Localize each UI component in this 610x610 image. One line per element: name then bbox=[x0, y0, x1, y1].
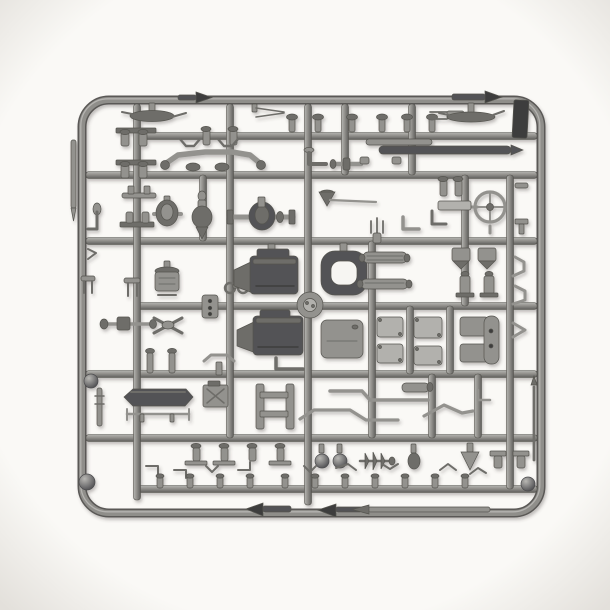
leaf-spring-a bbox=[359, 252, 410, 263]
valve-pair-shape bbox=[440, 180, 447, 196]
barrel-dark-bar bbox=[379, 145, 523, 155]
valve-pair-shape bbox=[453, 176, 463, 181]
clip-b bbox=[392, 157, 401, 164]
stand-valves-row-shape bbox=[213, 461, 235, 465]
valve-fittings-row-shape bbox=[402, 114, 413, 120]
finned-part-shape bbox=[389, 457, 395, 465]
center-disc-tag bbox=[297, 292, 323, 318]
valve-fittings-row-shape bbox=[313, 114, 324, 120]
rear-axle-shape bbox=[289, 210, 295, 224]
stand-valves-row-shape bbox=[249, 448, 256, 461]
barrel-dark-bar-shape bbox=[379, 146, 511, 154]
shaft-coupler-shape bbox=[150, 320, 157, 329]
teardrop-part-shape bbox=[411, 444, 416, 453]
blade-part-top-left-shape bbox=[130, 111, 174, 122]
canister-part-shape bbox=[155, 272, 179, 291]
stem-valve-a-shape bbox=[147, 353, 153, 373]
ladder-frame-shape bbox=[260, 392, 288, 398]
ball-stud-right-lower-shape bbox=[521, 477, 535, 491]
seat-cushion-d-shape bbox=[416, 348, 419, 351]
stand-part-a-shape bbox=[456, 293, 474, 297]
seat-cushion-c bbox=[414, 317, 442, 338]
x-bracket-shape bbox=[162, 321, 174, 329]
valve-pair-shape bbox=[438, 176, 448, 181]
leaf-spring-a-shape bbox=[359, 254, 365, 262]
cup-part-a-shape bbox=[490, 451, 506, 456]
stud-row-bottom-shape bbox=[402, 477, 408, 488]
stand-part-a-shape bbox=[460, 276, 470, 294]
leaf-spring-b-shape bbox=[357, 280, 363, 288]
stud-row-bottom-shape bbox=[282, 477, 288, 488]
mount-bracket-a-shape bbox=[121, 133, 129, 146]
seat-cushion-c-shape bbox=[438, 334, 441, 337]
stud-row-bottom-shape bbox=[311, 474, 319, 478]
clip-a-shape bbox=[360, 157, 369, 164]
valve-fittings-row-shape bbox=[347, 114, 358, 120]
stand-valves-row-shape bbox=[185, 461, 207, 465]
runner-vertical bbox=[475, 374, 482, 438]
ball-stud-left-lower bbox=[79, 474, 95, 490]
seat-cushion-d bbox=[414, 346, 442, 365]
valve-pair-shape bbox=[455, 180, 462, 196]
ball-stud-right-lower bbox=[521, 477, 535, 491]
tee-fitting-right-shape bbox=[519, 224, 524, 234]
stud-row-bottom-shape bbox=[217, 477, 223, 488]
fuel-tank bbox=[321, 320, 363, 358]
stud-row-bottom-shape bbox=[186, 474, 194, 478]
plate-light-small bbox=[438, 201, 471, 210]
stud-row-bottom-shape bbox=[372, 477, 378, 488]
mount-bracket-a-shape bbox=[120, 129, 130, 134]
seat-cushion-a-shape bbox=[399, 333, 402, 336]
grip-rod-left-shape bbox=[97, 388, 102, 426]
runner-horizontal bbox=[137, 133, 537, 140]
mount-bracket-b-shape bbox=[121, 165, 129, 178]
coupler-rod-shape bbox=[343, 158, 350, 170]
stud-row-bottom-shape bbox=[156, 474, 164, 478]
clip-right-upper bbox=[515, 183, 528, 188]
seat-cushion-c-shape bbox=[416, 319, 419, 322]
center-disc-tag-shape bbox=[312, 305, 315, 308]
mount-bracket-b-shape bbox=[139, 165, 147, 178]
ball-stud-left-mid-shape bbox=[84, 374, 98, 388]
runner-vertical bbox=[447, 306, 454, 374]
runner-vertical bbox=[507, 175, 514, 489]
engine-block-lower-shape bbox=[256, 318, 301, 323]
muffler-small-shape bbox=[402, 383, 429, 392]
clip-a bbox=[360, 157, 369, 164]
valve-fittings-row-shape bbox=[287, 114, 298, 120]
hole-bracket bbox=[202, 295, 218, 318]
stud-row-bottom-shape bbox=[312, 477, 318, 488]
handlebar-part-shape bbox=[216, 362, 222, 375]
gate-dart-top-b-shape bbox=[452, 94, 485, 100]
prong-bracket-a-shape bbox=[81, 276, 95, 281]
stud-clamp-pair-shape bbox=[201, 126, 211, 131]
cup-part-b-shape bbox=[517, 456, 525, 468]
stud-row-bottom-shape bbox=[216, 474, 224, 478]
leaf-spring-b bbox=[357, 279, 412, 289]
jerry-can bbox=[203, 381, 228, 407]
mold-tab-dark-shape bbox=[512, 100, 529, 139]
ball-pair-shape bbox=[315, 454, 329, 468]
seat-cushion-a-shape bbox=[379, 319, 382, 322]
mold-tab-dark bbox=[512, 100, 529, 139]
leaf-spring-a-shape bbox=[404, 254, 410, 262]
stem-valve-a bbox=[146, 348, 155, 373]
rack-bar-shape bbox=[140, 414, 144, 422]
stud-row-bottom-shape bbox=[341, 474, 349, 478]
blade-part-top-right-shape bbox=[447, 112, 495, 122]
flat-bar-light-shape bbox=[366, 139, 432, 145]
seat-cushion-d-shape bbox=[438, 361, 441, 364]
tee-fitting-right-shape bbox=[515, 219, 528, 224]
ball-pair-shape bbox=[337, 444, 342, 453]
ladder-frame-shape bbox=[286, 384, 294, 429]
runner-rod-bottom-shape bbox=[368, 507, 490, 512]
hole-bracket-shape bbox=[208, 312, 212, 316]
pad-part-a-shape bbox=[452, 248, 470, 261]
seat-cushion-b-shape bbox=[379, 346, 382, 349]
center-disc-tag-shape bbox=[306, 302, 309, 305]
stand-part-b-shape bbox=[480, 293, 498, 297]
stud-row-bottom-shape bbox=[461, 474, 469, 478]
stud-row-bottom-shape bbox=[246, 474, 254, 478]
muffler-small bbox=[402, 383, 433, 393]
mount-bracket-c-shape bbox=[142, 212, 149, 223]
side-rod-left bbox=[71, 140, 76, 221]
side-panel-curved bbox=[484, 316, 499, 364]
shaft-coupler-shape bbox=[117, 317, 130, 330]
strip-plate-shape bbox=[128, 186, 134, 194]
shaft-coupler-shape bbox=[100, 319, 108, 329]
stand-valves-row-shape bbox=[221, 448, 228, 461]
leaf-spring-b-shape bbox=[361, 279, 408, 289]
coupler-rod-shape bbox=[330, 160, 336, 169]
gate-dart-top-a-shape bbox=[178, 95, 196, 100]
strip-plate-shape bbox=[122, 193, 156, 198]
rack-bar-shape bbox=[170, 414, 174, 422]
plate-light-small-shape bbox=[438, 201, 471, 210]
rear-axle-shape bbox=[227, 210, 233, 224]
strip-plate-shape bbox=[144, 186, 150, 194]
stud-row-bottom-shape bbox=[187, 477, 193, 488]
runner-horizontal bbox=[137, 486, 537, 493]
stand-valves-row-shape bbox=[277, 448, 284, 461]
stud-row-bottom-shape bbox=[401, 474, 409, 478]
mount-bracket-b-shape bbox=[138, 161, 148, 166]
blade-part-top-right-shape bbox=[468, 103, 474, 113]
ball-stud-left-mid bbox=[84, 374, 98, 388]
stud-row-bottom-shape bbox=[247, 477, 253, 488]
stem-valve-b bbox=[168, 348, 177, 373]
stud-row-bottom-shape bbox=[462, 477, 468, 488]
mount-bracket-a-shape bbox=[138, 129, 148, 134]
seat-cushion-b-shape bbox=[399, 359, 402, 362]
side-panel-curved-shape bbox=[484, 316, 499, 364]
sway-bar-shape bbox=[215, 163, 229, 171]
mount-bracket-a-shape bbox=[139, 133, 147, 146]
stud-row-bottom-shape bbox=[157, 477, 163, 488]
side-rod-left-shape bbox=[71, 140, 76, 208]
ladder-frame-shape bbox=[256, 384, 264, 429]
mount-bracket-b-shape bbox=[120, 161, 130, 166]
spindle-part-shape bbox=[198, 191, 206, 201]
engine-block-upper-shape bbox=[257, 249, 289, 258]
hole-bracket-shape bbox=[208, 299, 212, 303]
flat-bar-light bbox=[366, 139, 432, 145]
rear-axle-shape bbox=[277, 212, 284, 223]
sprue-photo-svg bbox=[0, 0, 610, 610]
ball-pair-shape bbox=[319, 444, 324, 453]
funnel-cone-shape bbox=[467, 443, 473, 452]
sway-bar-shape bbox=[161, 161, 170, 170]
runner-vertical bbox=[407, 306, 414, 374]
muffler-small-shape bbox=[427, 383, 433, 392]
ball-stud-left-lower-shape bbox=[79, 474, 95, 490]
photo-stage: Photograph of a gray injection-molded pl… bbox=[0, 0, 610, 610]
rear-axle-shape bbox=[255, 206, 269, 224]
side-panel-curved-shape bbox=[489, 344, 493, 348]
stud-clamp-pair-shape bbox=[203, 130, 210, 145]
stand-part-b-shape bbox=[484, 276, 494, 294]
runner-vertical bbox=[369, 241, 376, 438]
stand-valves-row-shape bbox=[193, 448, 200, 461]
stud-clamp-pair-shape bbox=[228, 126, 238, 131]
leaf-spring-a-shape bbox=[363, 252, 407, 263]
leaf-spring-b-shape bbox=[406, 280, 412, 288]
sway-bar-shape bbox=[257, 161, 266, 170]
pad-part-b-shape bbox=[478, 248, 496, 261]
mount-bracket-c-shape bbox=[120, 222, 154, 227]
cup-part-b-shape bbox=[513, 451, 529, 456]
stud-row-bottom-shape bbox=[281, 474, 289, 478]
clip-b-shape bbox=[392, 157, 401, 164]
steering-wheel-hub bbox=[487, 204, 494, 211]
stud-row-bottom-shape bbox=[431, 474, 439, 478]
hull-part-dark bbox=[124, 389, 193, 406]
teardrop-part-shape bbox=[408, 453, 420, 469]
seat-cushion-b bbox=[377, 344, 403, 363]
stud-row-bottom-shape bbox=[342, 477, 348, 488]
rear-axle-shape bbox=[258, 197, 265, 207]
jerry-can-shape bbox=[208, 381, 220, 386]
stud-row-bottom-shape bbox=[432, 477, 438, 488]
runner-horizontal bbox=[137, 303, 537, 310]
trident-fork-shape bbox=[373, 233, 381, 243]
ring-frame-part-shape bbox=[331, 261, 357, 285]
ladder-frame-shape bbox=[260, 411, 288, 417]
valve-fittings-row-shape bbox=[377, 114, 388, 120]
fuel-tank-shape bbox=[352, 325, 358, 329]
stand-valves-row-shape bbox=[269, 461, 291, 465]
seat-cushion-a bbox=[377, 317, 403, 337]
side-panel-curved-shape bbox=[489, 329, 493, 333]
cup-part-a-shape bbox=[494, 456, 502, 468]
stud-row-bottom-shape bbox=[371, 474, 379, 478]
sway-bar-shape bbox=[186, 163, 200, 171]
clip-right-upper-shape bbox=[515, 183, 528, 188]
gate-dart-bottom-a-shape bbox=[263, 506, 291, 512]
small-differential-shape bbox=[161, 204, 173, 220]
spindle-part-shape bbox=[192, 206, 212, 228]
engine-block-upper-shape bbox=[253, 259, 296, 264]
stem-valve-b-shape bbox=[169, 353, 175, 373]
mount-bracket-c-shape bbox=[126, 212, 133, 223]
hole-bracket-shape bbox=[208, 306, 212, 310]
